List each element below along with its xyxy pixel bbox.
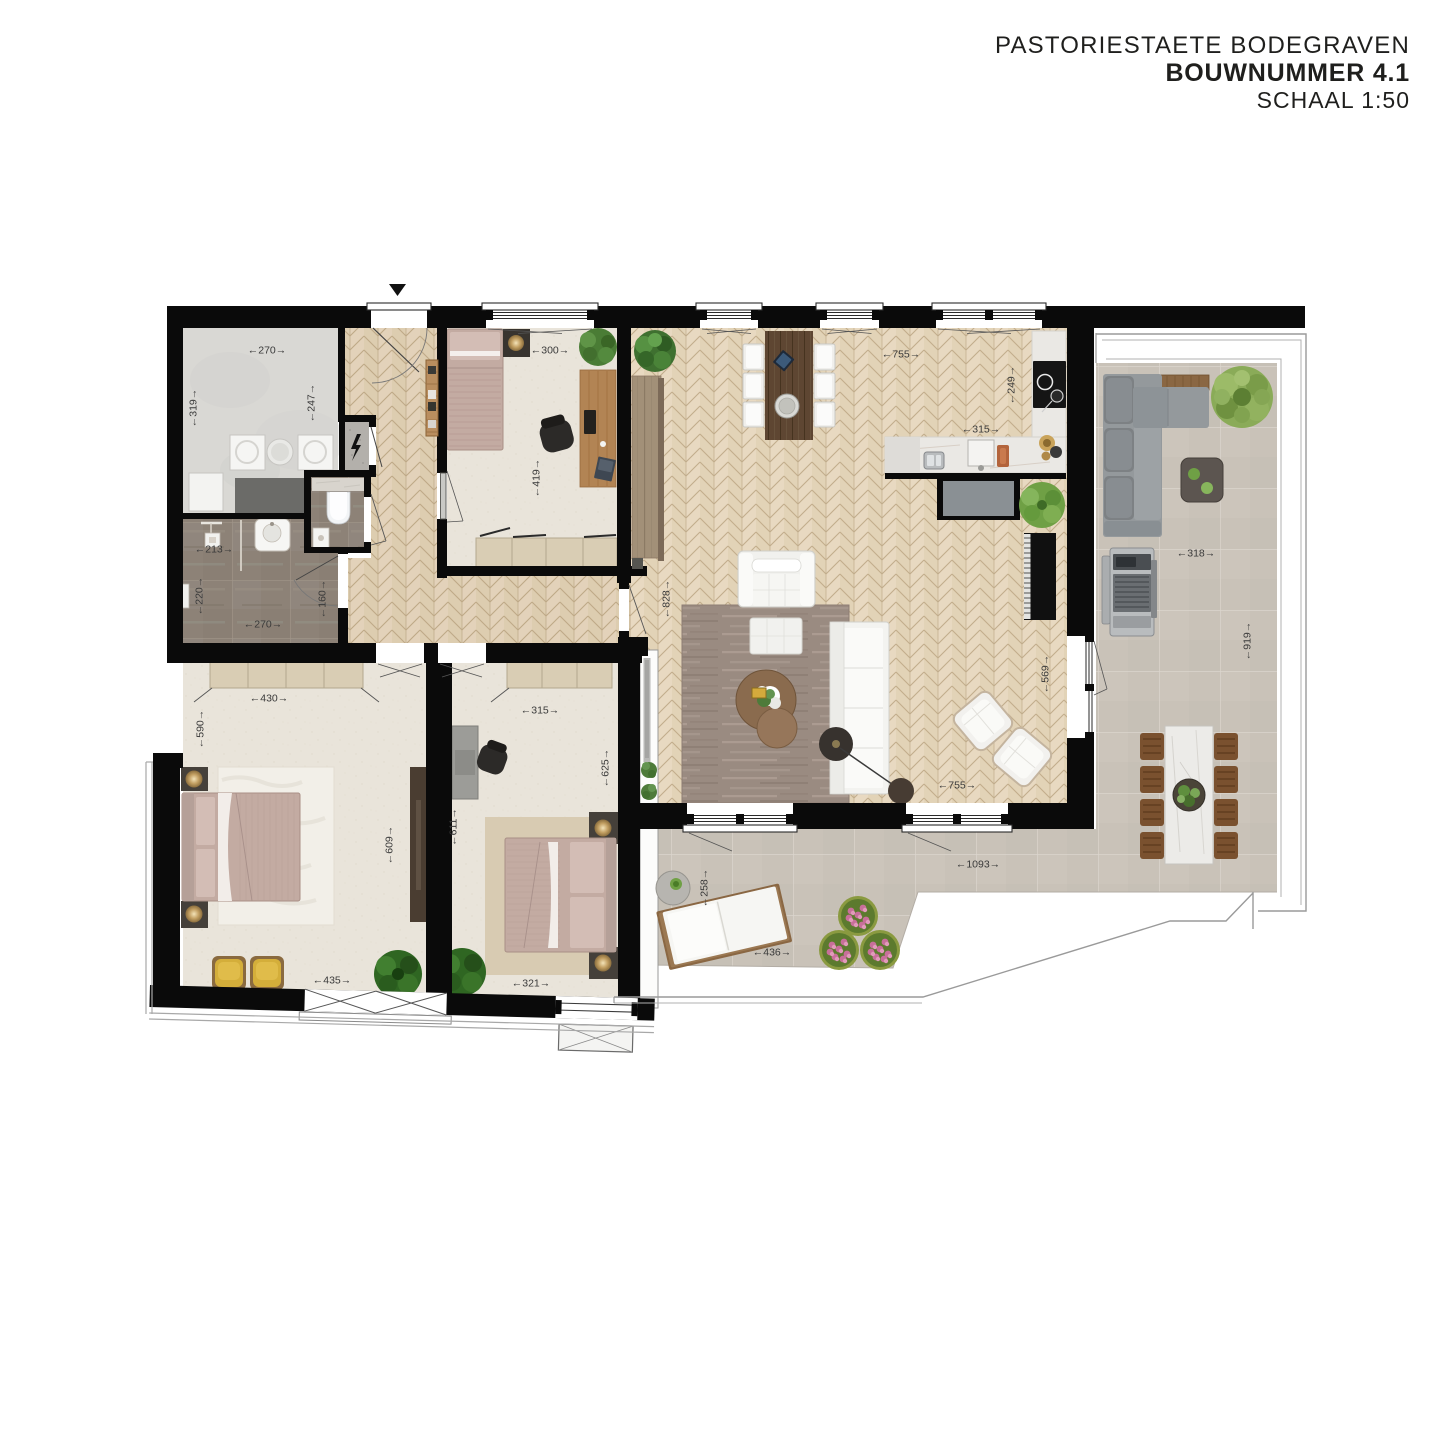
svg-text:←270→: ←270→ [248,345,287,357]
svg-text:←160→: ←160→ [317,580,329,619]
svg-text:←247→: ←247→ [306,384,318,423]
svg-text:←755→: ←755→ [938,780,977,792]
svg-text:←625→: ←625→ [600,749,612,788]
svg-text:←258→: ←258→ [699,869,711,908]
svg-text:←609→: ←609→ [384,826,396,865]
svg-text:←436→: ←436→ [753,947,792,959]
svg-text:←270→: ←270→ [244,619,283,631]
svg-text:←315→: ←315→ [521,705,560,717]
svg-text:←249→: ←249→ [1006,366,1018,405]
svg-text:←919→: ←919→ [1242,622,1254,661]
svg-text:←419→: ←419→ [531,459,543,498]
svg-text:←1093→: ←1093→ [956,859,1000,871]
svg-text:←569→: ←569→ [1040,655,1052,694]
svg-text:BOUWNUMMER 4.1: BOUWNUMMER 4.1 [1165,59,1410,87]
svg-text:SCHAAL 1:50: SCHAAL 1:50 [1257,87,1410,113]
svg-text:←611→: ←611→ [448,808,460,846]
svg-text:←430→: ←430→ [250,693,289,705]
svg-text:←213→: ←213→ [195,544,234,556]
svg-text:←315→: ←315→ [962,424,1001,436]
svg-text:←590→: ←590→ [195,710,207,749]
svg-text:←828→: ←828→ [661,580,673,619]
svg-text:←220→: ←220→ [194,577,206,616]
svg-text:←319→: ←319→ [188,389,200,428]
svg-text:←435→: ←435→ [313,975,352,987]
svg-text:←300→: ←300→ [531,345,570,357]
svg-text:←755→: ←755→ [882,349,921,361]
svg-text:←321→: ←321→ [512,978,551,990]
svg-text:PASTORIESTAETE BODEGRAVEN: PASTORIESTAETE BODEGRAVEN [995,32,1410,59]
svg-text:←318→: ←318→ [1177,548,1216,560]
